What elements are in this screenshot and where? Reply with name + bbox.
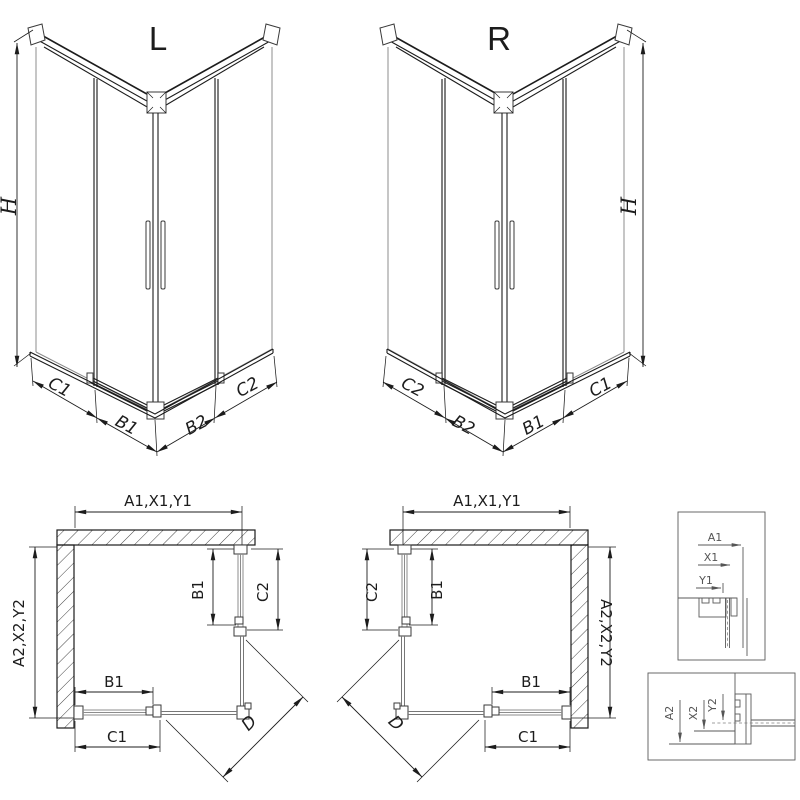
- plan-right-width-label: A1,X1,Y1: [453, 492, 521, 510]
- plan-right-front-outer-label: C1: [518, 728, 538, 746]
- plan-left-side-outer-label: C2: [254, 582, 272, 602]
- plan-right-top-wall: [390, 530, 588, 545]
- plan-left-width-label: A1,X1,Y1: [124, 492, 192, 510]
- plan-left-depth-label: A2,X2,Y2: [10, 599, 28, 667]
- detail-bottom-label-y2: Y2: [706, 698, 719, 713]
- plan-right-front-door-label: B1: [521, 673, 541, 691]
- plan-left-side-door-label: B1: [189, 580, 207, 600]
- plan-left-side-wall: [57, 545, 74, 728]
- plan-right-side-door-label: B1: [428, 580, 446, 600]
- iso-left-title: L: [149, 20, 167, 57]
- plan-right-depth-label: A2,X2,Y2: [597, 599, 615, 667]
- plan-left-top-wall: [57, 530, 255, 545]
- iso-left-height-label: H: [0, 196, 21, 216]
- plan-right-side-wall: [571, 545, 588, 728]
- drawing-canvas: L H C1 B1 B2 C2 R H C2 B2 B1 C1 A1,X1,Y1…: [0, 0, 800, 800]
- shower-enclosure-technical-drawing: L H C1 B1 B2 C2 R H C2 B2 B1 C1 A1,X1,Y1…: [0, 0, 800, 800]
- plan-left-front-outer-label: C1: [107, 728, 127, 746]
- iso-right-title: R: [487, 20, 511, 57]
- detail-top-label-y1: Y1: [698, 574, 713, 587]
- iso-right-height-label: H: [617, 196, 641, 216]
- detail-bottom-label-x2: X2: [687, 706, 700, 721]
- detail-top-label-x1: X1: [704, 551, 719, 564]
- detail-top-label-a1: A1: [708, 531, 723, 544]
- plan-right-side-outer-label: C2: [363, 582, 381, 602]
- plan-left-front-door-label: B1: [104, 673, 124, 691]
- detail-bottom-label-a2: A2: [663, 706, 676, 721]
